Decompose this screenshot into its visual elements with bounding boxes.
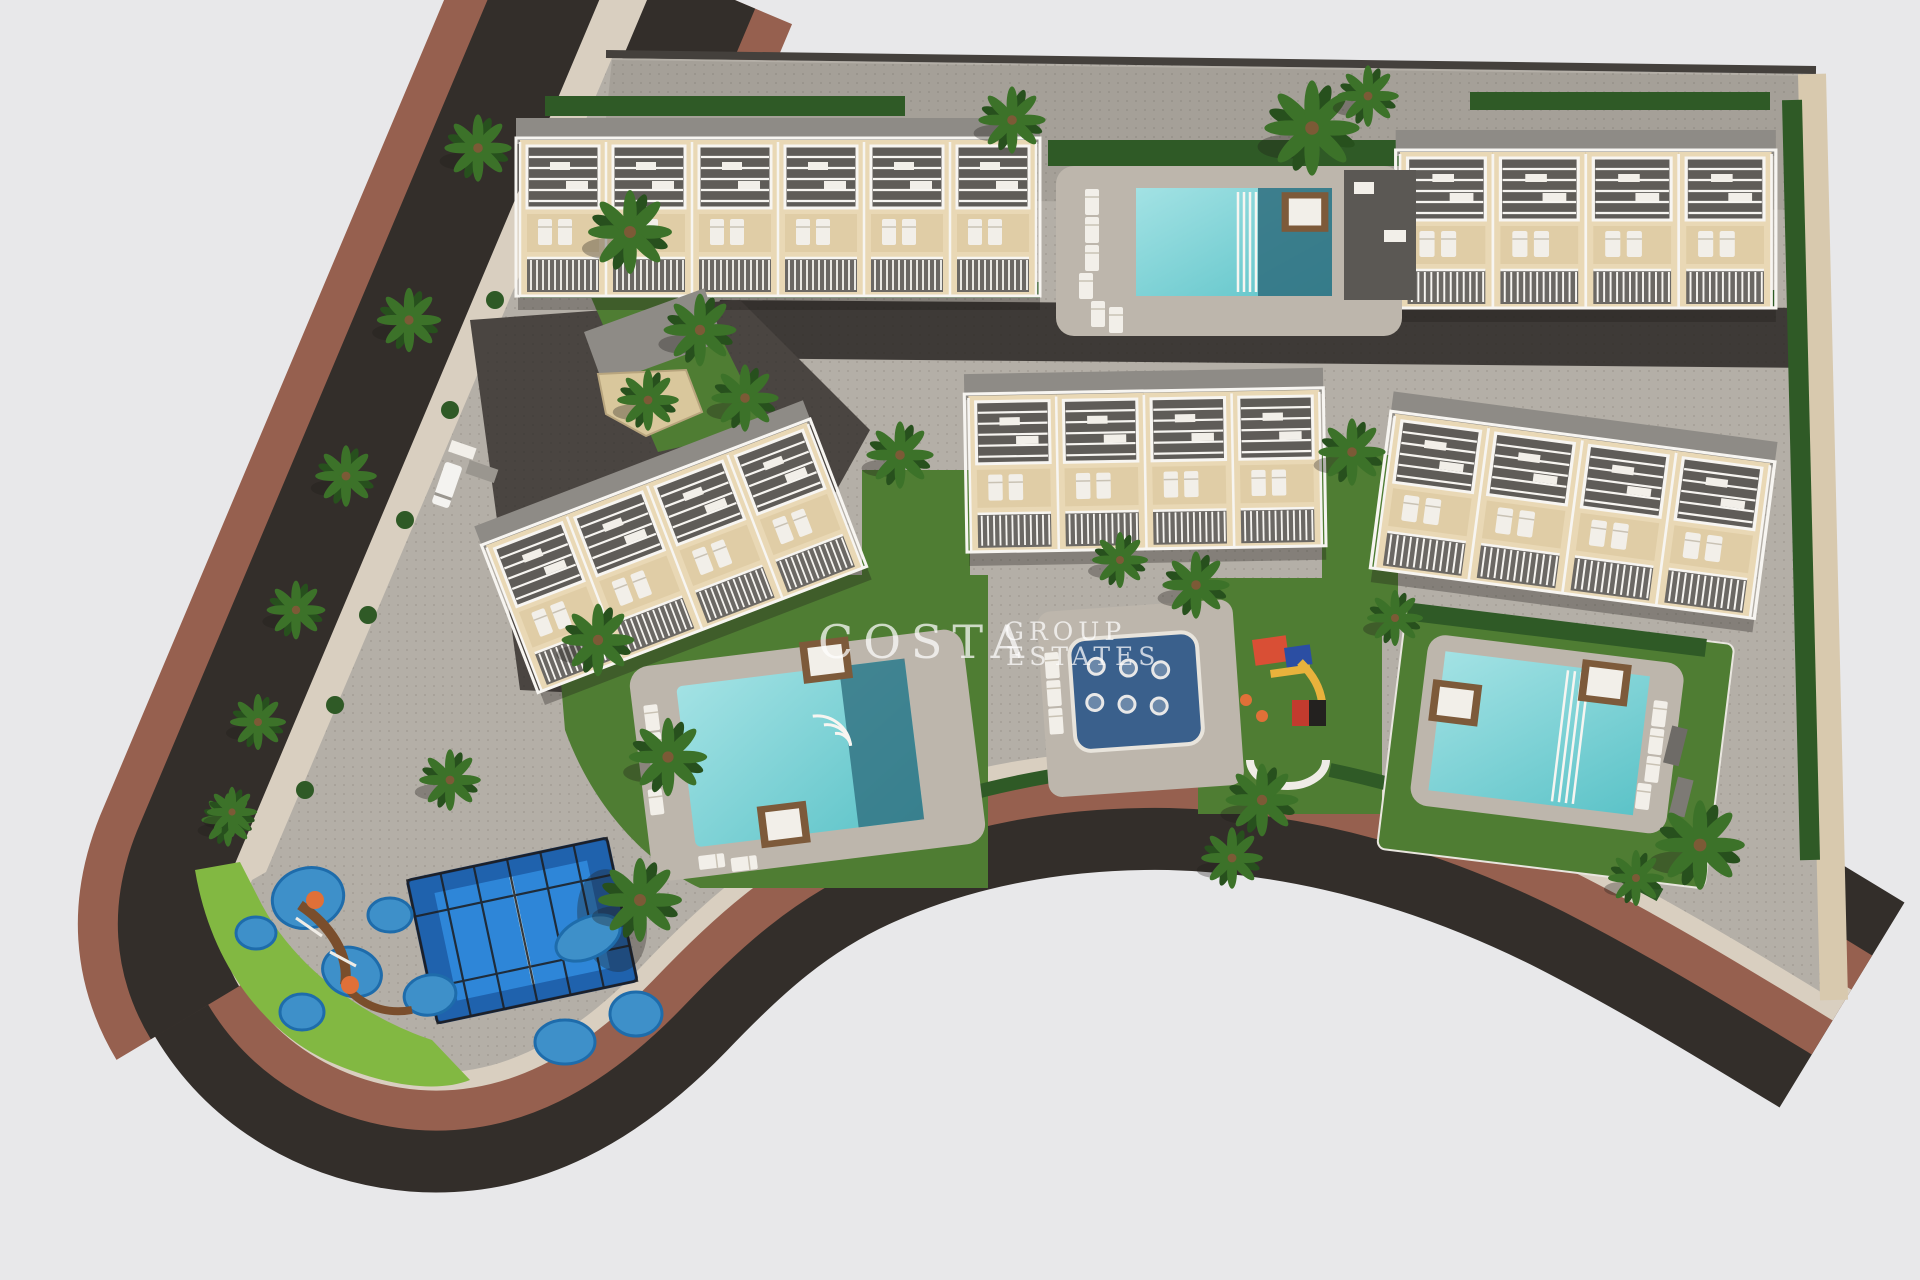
spring-rider: [1256, 710, 1268, 722]
site-plan-render: COSTA GROUP ESTATES: [0, 0, 1920, 1280]
aerial-render-canvas: COSTA GROUP ESTATES: [0, 0, 1920, 1280]
watermark-estates: ESTATES: [1006, 642, 1160, 671]
daybed: [757, 801, 811, 849]
spring-rider: [1240, 694, 1252, 706]
daybed: [1578, 659, 1632, 707]
play-box-dark: [1309, 700, 1326, 726]
building-block-top-left: [516, 118, 1040, 310]
daybed: [1428, 679, 1482, 727]
north-pool-area: [1056, 166, 1416, 336]
daybed: [1282, 192, 1329, 232]
hedge: [1470, 92, 1770, 110]
pavilion-detail: [1354, 182, 1374, 194]
building-block-mid-center: [964, 368, 1326, 566]
play-tower-red: [1252, 635, 1289, 665]
pavilion-detail: [1384, 230, 1406, 242]
watermark: COSTA GROUP ESTATES: [818, 615, 1160, 671]
watermark-costa: COSTA: [818, 615, 1034, 669]
building-block-top-right: [1396, 130, 1776, 322]
hedge: [545, 96, 905, 116]
